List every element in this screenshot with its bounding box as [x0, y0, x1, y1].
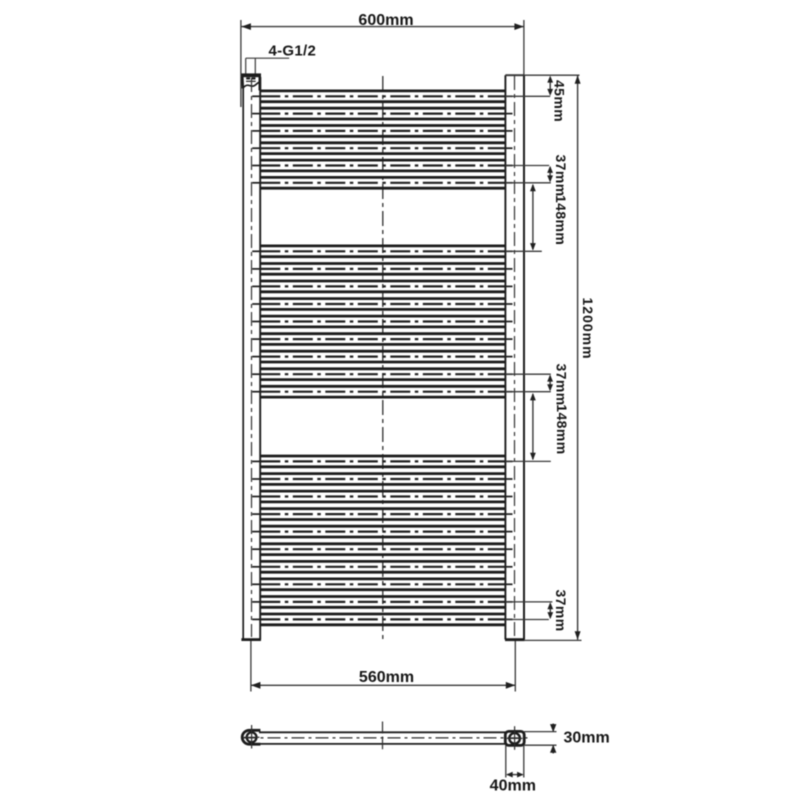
svg-text:37mm: 37mm [553, 590, 569, 632]
svg-text:30mm: 30mm [564, 729, 610, 746]
svg-text:560mm: 560mm [359, 669, 414, 686]
svg-text:37mm: 37mm [554, 364, 570, 406]
svg-text:37mm: 37mm [553, 155, 569, 197]
svg-text:4-G1/2: 4-G1/2 [269, 43, 317, 60]
svg-text:600mm: 600mm [358, 12, 413, 29]
svg-text:148mm: 148mm [553, 195, 569, 245]
svg-text:148mm: 148mm [554, 404, 570, 454]
svg-text:1200mm: 1200mm [580, 298, 596, 360]
svg-text:40mm: 40mm [490, 778, 536, 793]
svg-text:45mm: 45mm [552, 80, 568, 122]
